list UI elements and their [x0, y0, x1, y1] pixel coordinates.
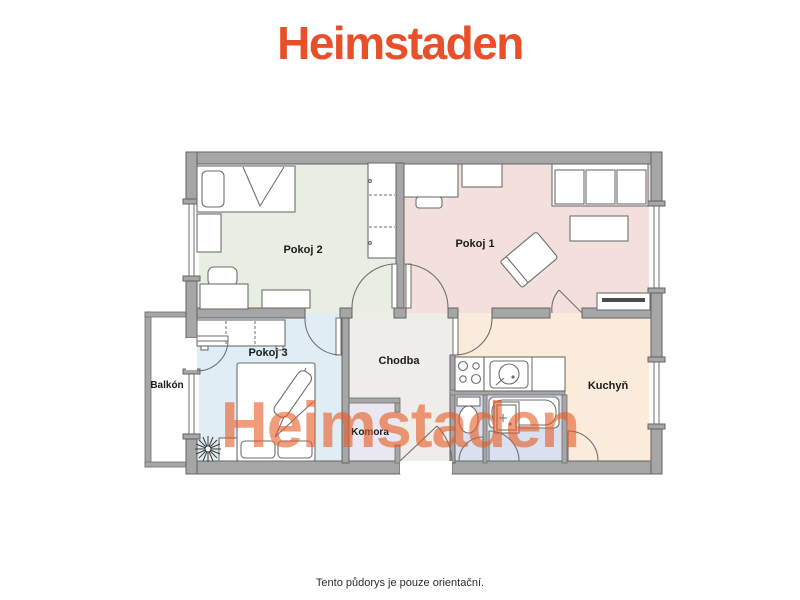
window-pokoj1: [648, 201, 665, 293]
wall-chodba-kuchyn: [450, 355, 455, 463]
balcony-wall-top: [145, 312, 192, 317]
tv-stand: [597, 293, 650, 310]
pillow: [241, 441, 275, 458]
desk: [200, 284, 248, 309]
room-label-chodba: Chodba: [379, 355, 421, 367]
floorplan: Pokoj 2 Pokoj 1 Pokoj 3 Chodba Komora Ku…: [0, 0, 800, 600]
wall-wc-koupelna: [483, 395, 487, 463]
kitchen-sink: [490, 361, 528, 388]
nightstand: [197, 214, 221, 252]
bathroom-fixtures: [457, 397, 559, 433]
balcony-door-opening: [186, 338, 197, 370]
wall-mid: [448, 308, 458, 318]
coffee-table: [570, 216, 628, 241]
wall-pokoj3-chodba: [342, 318, 349, 463]
wall-koupelna-kuchyn: [562, 395, 567, 463]
entrance-opening: [400, 461, 452, 474]
room-label-balkon: Balkón: [150, 380, 183, 391]
wall-mid: [492, 308, 550, 318]
wall-komora-top: [349, 398, 400, 403]
shelf: [462, 164, 502, 187]
room-label-komora: Komora: [351, 427, 389, 438]
wall-exterior-top: [186, 152, 662, 164]
kitchen-fixtures: [455, 357, 565, 391]
room-label-kuchyn: Kuchyň: [588, 380, 629, 392]
wall-mid: [340, 308, 352, 318]
wall-mid: [394, 308, 406, 318]
room-label-pokoj3: Pokoj 3: [248, 347, 287, 359]
room-label-pokoj1: Pokoj 1: [455, 238, 494, 250]
wall-exterior-bottom-left: [186, 461, 400, 474]
pillow: [202, 171, 224, 207]
toilet: [457, 397, 480, 433]
wall-exterior-left: [186, 276, 197, 338]
sofa: [552, 164, 648, 206]
wall-exterior-right: [651, 288, 662, 362]
nightstand: [219, 438, 237, 461]
pillow: [278, 441, 312, 458]
disclaimer-text: Tento půdorys je pouze orientační.: [0, 577, 800, 589]
dresser: [262, 290, 310, 308]
chair: [208, 267, 237, 286]
wardrobe: [197, 320, 285, 350]
wall-komora-right: [395, 445, 400, 463]
wall-exterior-right: [651, 152, 662, 206]
stove: [455, 357, 484, 391]
window-pokoj3-balcony: [183, 369, 200, 439]
washbasin: [494, 402, 519, 433]
room-label-pokoj2: Pokoj 2: [283, 244, 322, 256]
window-kuchyn: [648, 357, 665, 429]
wall-exterior-right: [651, 424, 662, 474]
chair: [416, 197, 442, 208]
wardrobe: [368, 163, 396, 258]
page: Heimstaden: [0, 0, 800, 600]
double-bed: [237, 363, 315, 461]
wall-exterior-left: [186, 152, 197, 204]
desk: [404, 164, 458, 197]
balcony-wall-bottom: [145, 462, 192, 467]
wall-komora-right: [395, 403, 400, 412]
wall-exterior-left: [186, 434, 197, 474]
